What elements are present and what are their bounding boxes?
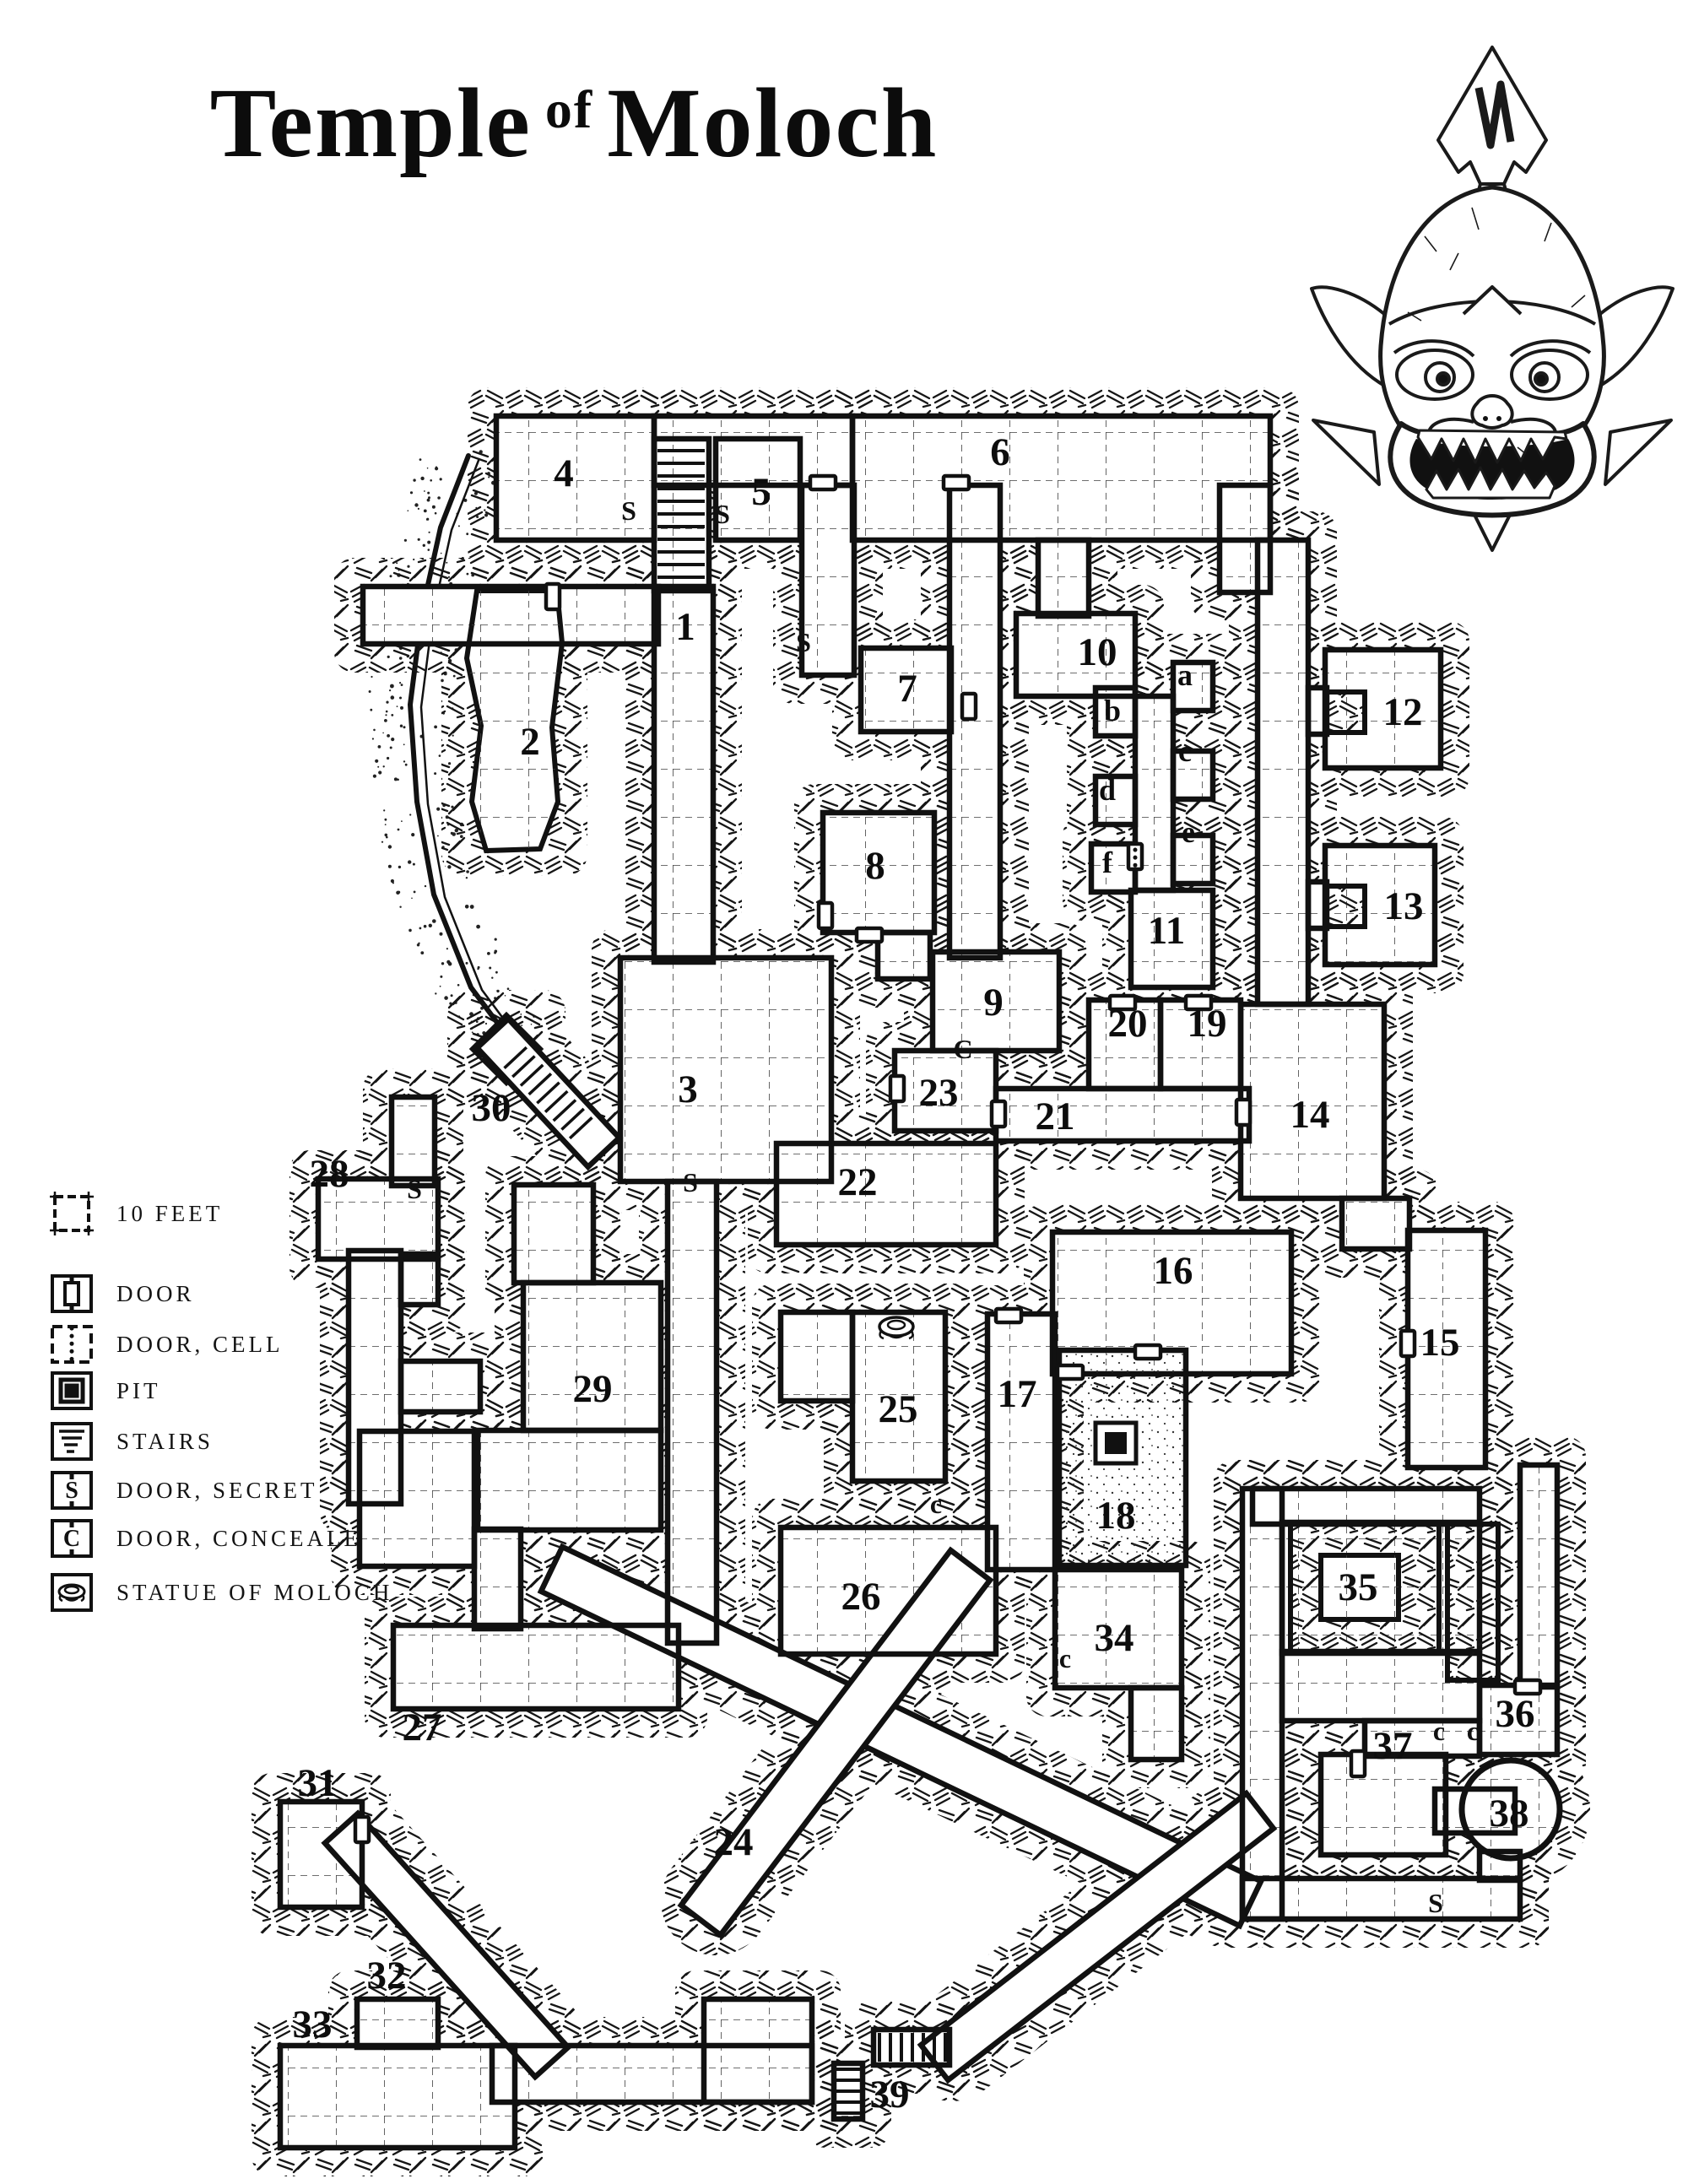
- cliff-stipple: [495, 938, 497, 941]
- concealed-door-mark: c: [930, 1489, 942, 1519]
- room-label-36: 36: [1496, 1692, 1535, 1736]
- cliff-stipple: [384, 719, 387, 722]
- cliff-stipple: [394, 777, 398, 781]
- cliff-stipple: [487, 952, 490, 955]
- cliff-stipple: [427, 499, 430, 502]
- floor-grid: [668, 1181, 717, 1643]
- room-label-32: 32: [367, 1954, 407, 1997]
- door-icon: [992, 1101, 1005, 1127]
- floor-grid: [401, 1361, 480, 1412]
- room-label-20: 20: [1108, 1002, 1148, 1046]
- dungeon-map: SSSSSSCcccc12345678910111213141516171819…: [0, 0, 1688, 2184]
- floor-grid: [514, 1185, 593, 1283]
- cell-label-c: c: [1178, 734, 1192, 768]
- cliff-stipple: [432, 919, 436, 923]
- room-label-23: 23: [919, 1071, 959, 1115]
- cliff-stipple: [465, 905, 469, 909]
- room-label-37: 37: [1373, 1724, 1413, 1768]
- door-icon: [1058, 1365, 1083, 1379]
- floor-grid: [1520, 1465, 1557, 1687]
- door-icon: [962, 694, 976, 719]
- door-icon: [857, 928, 882, 942]
- room-label-26: 26: [841, 1575, 881, 1619]
- cliff-stipple: [413, 863, 415, 866]
- room-label-18: 18: [1096, 1494, 1136, 1538]
- cliff-stipple: [377, 766, 379, 768]
- cliff-stipple: [434, 726, 437, 729]
- cliff-stipple: [411, 898, 413, 900]
- cliff-stipple: [403, 760, 405, 762]
- cliff-stipple: [427, 492, 430, 495]
- cliff-stipple: [387, 757, 389, 760]
- cliff-stipple: [389, 689, 391, 691]
- floor-grid: [1016, 614, 1135, 696]
- concealed-door-mark: C: [953, 1034, 972, 1064]
- cliff-stipple: [436, 808, 440, 811]
- cliff-stipple: [375, 760, 378, 763]
- cliff-stipple: [429, 924, 432, 927]
- cliff-stipple: [427, 468, 429, 469]
- cliff-stipple: [378, 770, 381, 774]
- cliff-stipple: [397, 779, 399, 781]
- cliff-stipple: [495, 971, 498, 974]
- cliff-stipple: [372, 738, 374, 739]
- cliff-stipple: [458, 525, 460, 527]
- cliff-stipple: [427, 541, 430, 544]
- floor-grid: [996, 1089, 1249, 1141]
- room-label-25: 25: [879, 1387, 918, 1431]
- cliff-stipple: [403, 726, 406, 728]
- cliff-stipple: [409, 814, 411, 815]
- door-icon: [1135, 1345, 1160, 1359]
- cliff-stipple: [388, 845, 392, 848]
- room-label-7: 7: [897, 667, 917, 711]
- room-label-5: 5: [751, 470, 771, 514]
- cliff-stipple: [392, 882, 394, 884]
- secret-door-mark: S: [683, 1167, 698, 1197]
- cliff-stipple: [408, 929, 412, 933]
- cliff-stipple: [385, 819, 387, 821]
- cliff-stipple: [385, 834, 388, 837]
- floor-grid: [781, 1312, 852, 1401]
- cliff-stipple: [418, 508, 419, 510]
- cliff-stipple: [399, 697, 402, 700]
- cliff-stipple: [370, 709, 372, 711]
- cliff-stipple: [396, 891, 399, 895]
- cliff-stipple: [436, 467, 437, 468]
- floor-grid: [1242, 1489, 1282, 1919]
- floor-grid: [392, 1097, 435, 1186]
- floor-grid: [620, 958, 831, 1181]
- concealed-door-mark: c: [1433, 1716, 1445, 1746]
- cliff-stipple: [401, 820, 403, 822]
- cell-label-e: e: [1182, 815, 1195, 849]
- secret-door-mark: S: [796, 627, 811, 657]
- room-label-38: 38: [1490, 1792, 1529, 1835]
- room-label-21: 21: [1036, 1095, 1075, 1138]
- cliff-stipple: [390, 684, 394, 689]
- cliff-stipple: [391, 738, 394, 741]
- room-label-12: 12: [1383, 690, 1423, 734]
- room-label-31: 31: [298, 1761, 338, 1805]
- floor-grid: [474, 1529, 521, 1629]
- room-label-28: 28: [310, 1152, 349, 1196]
- room-label-2: 2: [520, 720, 540, 764]
- cliff-stipple: [391, 695, 395, 700]
- cliff-stipple: [441, 553, 442, 554]
- cliff-stipple: [385, 824, 387, 825]
- room-label-35: 35: [1339, 1565, 1378, 1609]
- room-label-39: 39: [870, 2073, 910, 2116]
- floor-grid: [357, 1999, 438, 2047]
- cliff-stipple: [435, 512, 437, 515]
- room-label-9: 9: [983, 981, 1004, 1024]
- cliff-stipple: [470, 905, 474, 909]
- cliff-stipple: [446, 960, 450, 964]
- cliff-stipple: [435, 992, 436, 994]
- floor-grid: [1342, 1198, 1409, 1249]
- cliff-stipple: [408, 860, 411, 863]
- cliff-stipple: [437, 835, 439, 837]
- floor-grid: [878, 933, 930, 979]
- cliff-stipple: [451, 994, 453, 997]
- cliff-stipple: [428, 496, 430, 499]
- room-label-8: 8: [865, 844, 885, 888]
- cliff-stipple: [419, 458, 422, 461]
- cliff-stipple: [440, 478, 442, 480]
- cliff-stipple: [414, 891, 416, 894]
- cliff-stipple: [405, 764, 408, 766]
- cliff-stipple: [404, 539, 407, 542]
- cliff-stipple: [439, 754, 441, 757]
- cliff-stipple: [390, 747, 392, 749]
- cliff-stipple: [419, 927, 422, 930]
- cliff-stipple: [408, 510, 409, 511]
- cell-label-b: b: [1104, 694, 1121, 727]
- cliff-stipple: [386, 836, 388, 839]
- room-label-15: 15: [1420, 1321, 1460, 1365]
- door-icon: [1351, 1751, 1365, 1776]
- cliff-stipple: [381, 841, 383, 843]
- cliff-stipple: [400, 706, 403, 710]
- secret-door-mark: S: [621, 495, 636, 526]
- cliff-stipple: [428, 549, 430, 551]
- floor-grid: [467, 591, 562, 851]
- cliff-stipple: [401, 684, 403, 686]
- room-label-24: 24: [714, 1820, 754, 1864]
- floor-grid: [1258, 540, 1308, 1004]
- maze-island: [1327, 886, 1365, 927]
- door-icon: [944, 476, 969, 489]
- secret-door-mark: S: [1428, 1888, 1443, 1918]
- room-label-17: 17: [998, 1372, 1037, 1416]
- door-icon: [546, 584, 560, 609]
- maze-island: [1327, 692, 1365, 733]
- cliff-stipple: [476, 925, 480, 929]
- cliff-stipple: [388, 865, 392, 868]
- cliff-stipple: [383, 765, 385, 767]
- cliff-stipple: [387, 734, 390, 738]
- cliff-stipple: [478, 966, 480, 969]
- cliff-stipple: [403, 743, 405, 745]
- pit-icon: [1105, 1432, 1127, 1454]
- cliff-stipple: [425, 885, 426, 887]
- cliff-stipple: [441, 962, 444, 965]
- cliff-stipple: [410, 491, 413, 494]
- secret-door-mark: S: [407, 1174, 422, 1204]
- door-icon: [355, 1817, 369, 1842]
- cliff-stipple: [437, 496, 441, 500]
- door-icon: [996, 1309, 1021, 1322]
- maze-island: [1447, 1524, 1498, 1680]
- cliff-stipple: [466, 962, 468, 965]
- cliff-stipple: [382, 733, 384, 734]
- cliff-stipple: [440, 986, 441, 987]
- cliff-stipple: [414, 503, 418, 506]
- cliff-stipple: [434, 772, 436, 775]
- room-label-19: 19: [1188, 1002, 1227, 1046]
- floor-grid: [704, 1999, 812, 2102]
- cliff-stipple: [373, 775, 376, 778]
- cliff-stipple: [397, 705, 398, 707]
- cliff-stipple: [398, 866, 401, 868]
- cliff-stipple: [424, 510, 427, 513]
- cliff-stipple: [491, 977, 493, 979]
- room-label-10: 10: [1078, 630, 1117, 674]
- cliff-stipple: [369, 690, 371, 693]
- room-label-30: 30: [472, 1086, 511, 1130]
- cell-label-a: a: [1177, 658, 1193, 692]
- cliff-stipple: [417, 943, 419, 946]
- cliff-stipple: [386, 711, 388, 713]
- door-icon: [890, 1076, 904, 1101]
- cliff-stipple: [489, 967, 491, 970]
- cell-label-f: f: [1102, 846, 1113, 879]
- cliff-stipple: [440, 976, 442, 978]
- cliff-stipple: [507, 987, 510, 990]
- cliff-stipple: [385, 714, 387, 716]
- cliff-stipple: [398, 829, 400, 831]
- door-icon: [1401, 1331, 1415, 1356]
- floor-grid: [949, 485, 1000, 958]
- room-label-3: 3: [678, 1068, 698, 1111]
- room-label-16: 16: [1154, 1249, 1193, 1293]
- cliff-stipple: [424, 925, 427, 928]
- room-label-27: 27: [403, 1706, 442, 1749]
- cliff-stipple: [466, 877, 468, 878]
- cliff-stipple: [444, 996, 448, 1000]
- cliff-stipple: [400, 725, 403, 727]
- floor-grid: [1131, 1688, 1182, 1760]
- cliff-stipple: [373, 729, 376, 732]
- secret-door-mark: S: [715, 499, 730, 529]
- floor-grid: [360, 1431, 474, 1566]
- cliff-stipple: [457, 984, 460, 987]
- cliff-stipple: [426, 518, 429, 521]
- floor-grid: [1038, 540, 1089, 616]
- concealed-door-mark: c: [1467, 1716, 1479, 1746]
- room-label-29: 29: [573, 1367, 613, 1411]
- door-icon: [1236, 1100, 1250, 1125]
- cliff-stipple: [399, 906, 401, 908]
- cliff-stipple: [432, 505, 436, 509]
- concealed-door-mark: c: [1059, 1643, 1071, 1673]
- cliff-stipple: [423, 544, 425, 547]
- floor-grid: [1321, 1754, 1446, 1855]
- floor-grid: [1252, 1489, 1480, 1524]
- cliff-stipple: [429, 532, 430, 533]
- door-icon: [819, 903, 832, 928]
- cliff-stipple: [399, 682, 401, 684]
- room-label-4: 4: [554, 451, 574, 495]
- cell-label-d: d: [1099, 773, 1116, 807]
- cliff-stipple: [391, 714, 393, 716]
- cliff-stipple: [411, 833, 414, 836]
- cliff-stipple: [386, 701, 388, 704]
- room-label-6: 6: [990, 430, 1010, 474]
- cliff-stipple: [446, 948, 448, 949]
- cliff-stipple: [371, 676, 372, 678]
- floor-grid: [478, 1430, 661, 1530]
- cliff-stipple: [440, 933, 443, 936]
- cliff-stipple: [430, 479, 432, 482]
- cliff-stipple: [424, 490, 425, 492]
- map-sheet: Temple of Moloch: [0, 0, 1688, 2184]
- cliff-stipple: [378, 745, 381, 749]
- cliff-stipple: [418, 538, 420, 541]
- room-label-33: 33: [293, 2003, 333, 2046]
- room-label-34: 34: [1095, 1616, 1134, 1660]
- cliff-stipple: [420, 477, 424, 480]
- cliff-stipple: [413, 478, 415, 481]
- cliff-stipple: [420, 951, 424, 954]
- cliff-stipple: [383, 809, 385, 811]
- room-label-13: 13: [1384, 884, 1424, 928]
- cliff-stipple: [495, 950, 498, 954]
- door-icon: [810, 476, 836, 489]
- floor-grid: [280, 2046, 515, 2148]
- room-label-22: 22: [838, 1160, 878, 1204]
- room-label-1: 1: [675, 605, 695, 649]
- floor-grid: [852, 416, 1270, 540]
- room-label-11: 11: [1148, 909, 1185, 953]
- room-label-14: 14: [1290, 1093, 1330, 1137]
